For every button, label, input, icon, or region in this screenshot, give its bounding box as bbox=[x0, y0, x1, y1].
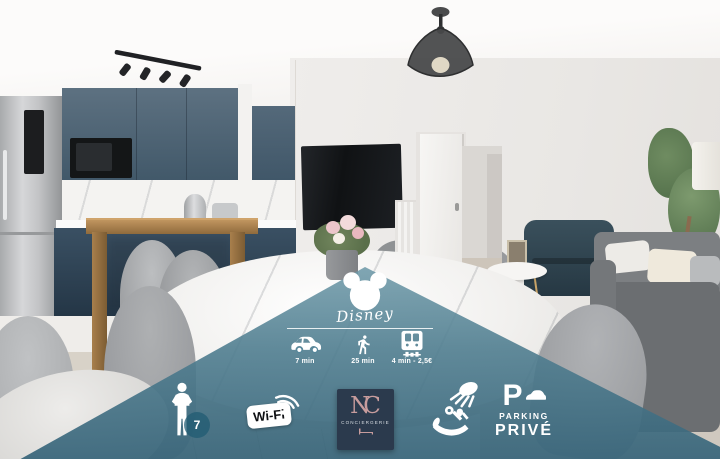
parking-line1: PARKING bbox=[499, 411, 549, 421]
floor-lamp-shade bbox=[692, 142, 720, 190]
bed-icon bbox=[359, 428, 373, 435]
guest-count: 7 bbox=[194, 418, 201, 432]
hallway-door bbox=[487, 154, 502, 266]
rose bbox=[333, 233, 345, 244]
parking-p-label: P bbox=[502, 382, 522, 410]
parking-line2: PRIVÉ bbox=[495, 422, 553, 440]
train-icon bbox=[400, 330, 424, 358]
brand-monogram: NC bbox=[350, 393, 381, 419]
microwave-door bbox=[76, 143, 112, 171]
conciergerie-logo-card: NC CONCIERGERIE bbox=[337, 389, 394, 450]
walk-time-label: 25 min bbox=[338, 358, 388, 365]
parking-car-icon bbox=[525, 390, 546, 401]
track-light bbox=[112, 46, 208, 90]
cabinet-seam bbox=[136, 88, 137, 182]
cabinet-seam bbox=[186, 88, 187, 182]
car-icon bbox=[286, 334, 324, 355]
listing-cover-photo: Disney 7 min 25 min 4 min - 2,5€ 7 Wi-Fi… bbox=[0, 0, 720, 459]
rose bbox=[352, 227, 364, 239]
brand-name: CONCIERGERIE bbox=[341, 420, 390, 425]
wall-corner-line bbox=[295, 60, 296, 220]
guest-count-badge: 7 bbox=[184, 412, 210, 438]
train-time-label: 4 min - 2,5€ bbox=[382, 358, 442, 365]
walking-icon bbox=[353, 331, 374, 358]
car-time-label: 7 min bbox=[280, 358, 330, 365]
fridge-handle bbox=[3, 150, 7, 220]
parking-block: P PARKING PRIVÉ bbox=[494, 382, 554, 440]
door bbox=[420, 134, 464, 266]
overlay-divider bbox=[287, 328, 433, 329]
fridge-control-panel bbox=[24, 110, 44, 174]
key-handover-icon bbox=[430, 378, 480, 442]
door-handle bbox=[455, 203, 459, 211]
pendant-lamp bbox=[402, 6, 482, 92]
